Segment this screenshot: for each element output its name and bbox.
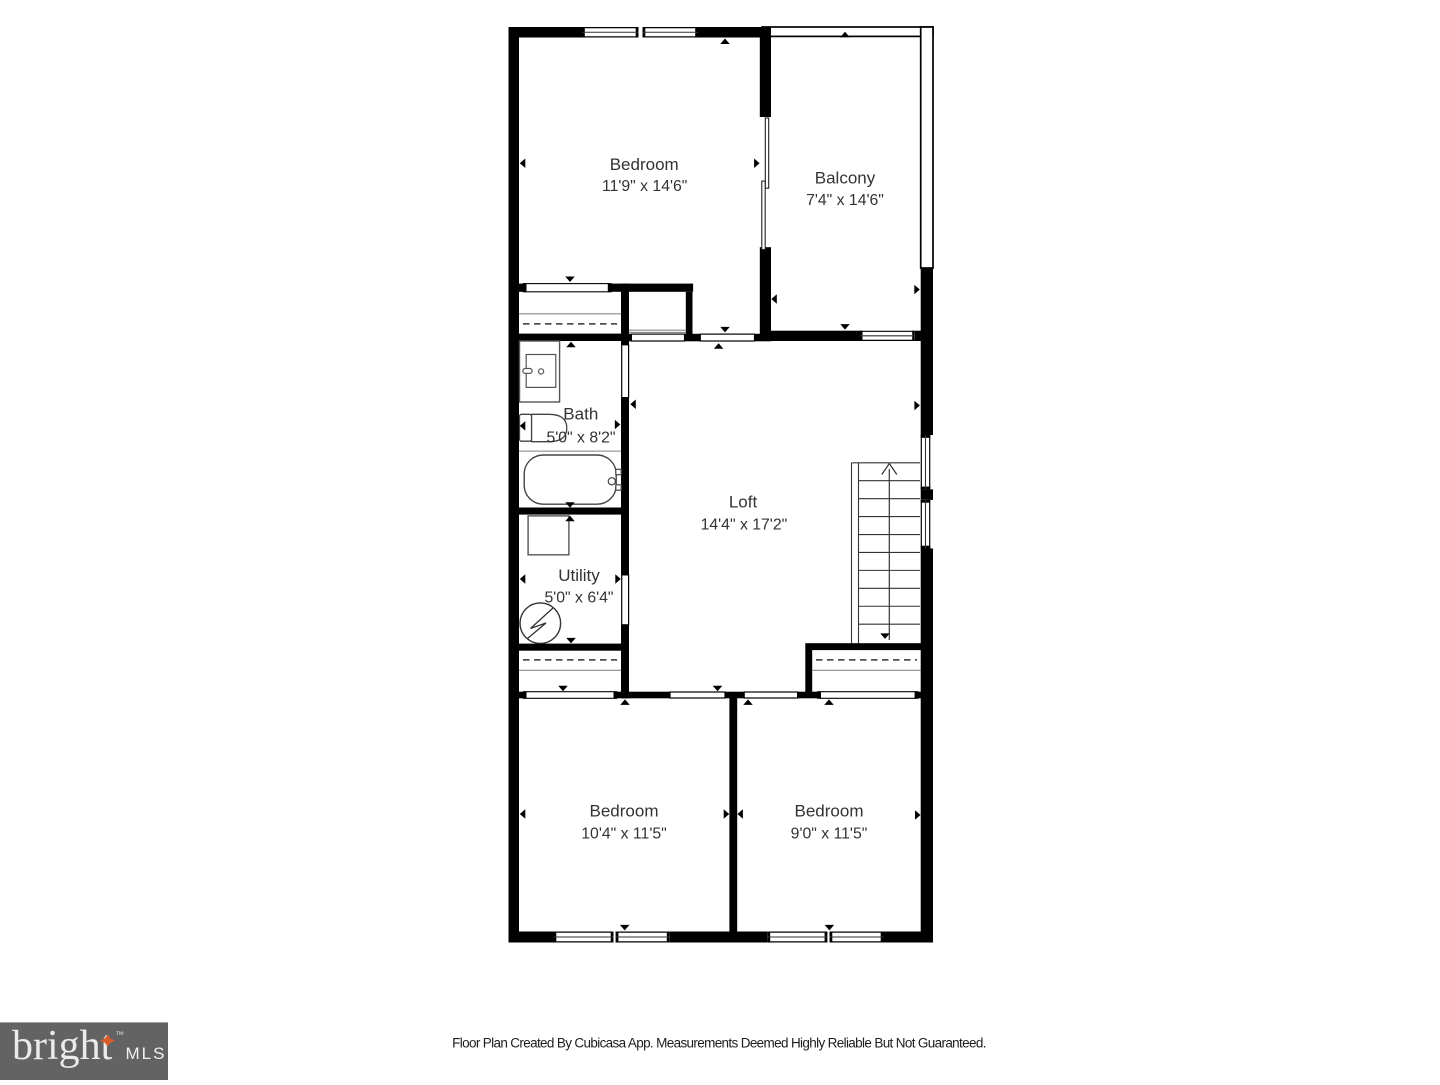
svg-text:™: ™ xyxy=(115,1030,124,1040)
svg-text:Floor Plan Created By Cubicasa: Floor Plan Created By Cubicasa App. Meas… xyxy=(452,1036,986,1051)
svg-text:MLS: MLS xyxy=(126,1044,167,1063)
svg-text:7'4" x 14'6": 7'4" x 14'6" xyxy=(806,192,884,209)
svg-text:bright: bright xyxy=(12,1023,113,1069)
svg-text:9'0" x 11'5": 9'0" x 11'5" xyxy=(791,826,868,843)
svg-text:11'9" x 14'6": 11'9" x 14'6" xyxy=(602,178,687,195)
svg-text:Utility: Utility xyxy=(558,566,600,585)
svg-text:5'0" x 8'2": 5'0" x 8'2" xyxy=(546,429,615,446)
svg-text:Bedroom: Bedroom xyxy=(795,802,864,821)
svg-text:Balcony: Balcony xyxy=(815,169,876,188)
svg-text:Bath: Bath xyxy=(563,405,598,424)
svg-text:Bedroom: Bedroom xyxy=(590,802,659,821)
svg-text:5'0" x 6'4": 5'0" x 6'4" xyxy=(544,590,613,607)
svg-text:Bedroom: Bedroom xyxy=(610,155,679,174)
svg-text:10'4" x 11'5": 10'4" x 11'5" xyxy=(581,826,666,843)
svg-text:Loft: Loft xyxy=(729,493,758,512)
svg-text:14'4" x 17'2": 14'4" x 17'2" xyxy=(701,517,788,534)
